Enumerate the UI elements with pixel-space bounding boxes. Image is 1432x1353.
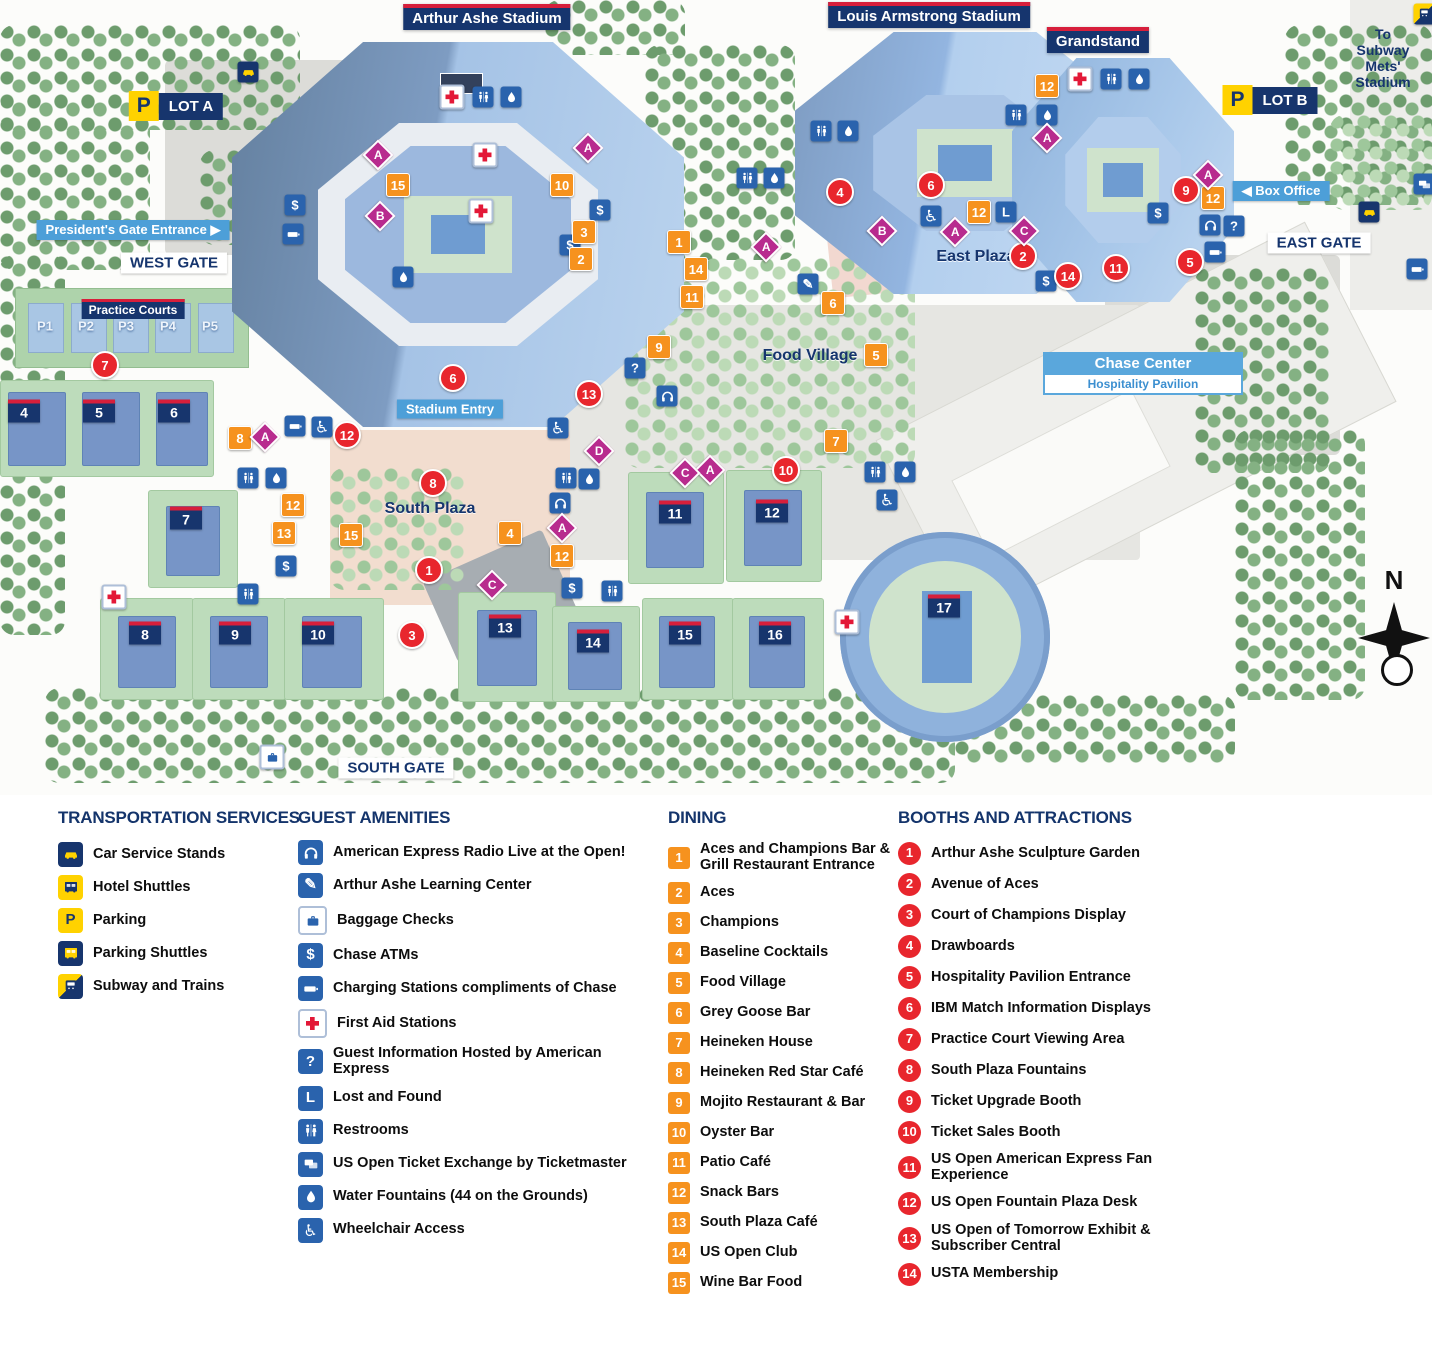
- booth-number-badge: 10: [898, 1121, 921, 1144]
- marker-firstaid-icon: [1068, 67, 1093, 92]
- legend-item: 1Arthur Ashe Sculpture Garden: [898, 842, 1228, 865]
- legend-item: 4Drawboards: [898, 935, 1228, 958]
- dining-number-badge: 2: [668, 882, 690, 904]
- marker-dining-11: 11: [680, 285, 704, 309]
- marker-dining-15: 15: [386, 173, 410, 197]
- legend-dining: DINING 1Aces and Champions Bar & Grill R…: [668, 808, 896, 1302]
- legend-item: 6IBM Match Information Displays: [898, 997, 1228, 1020]
- legend-item: Hotel Shuttles: [58, 875, 293, 900]
- dining-number-badge: 11: [668, 1152, 690, 1174]
- legend-item-label: US Open of Tomorrow Exhibit & Subscriber…: [931, 1223, 1228, 1255]
- legend-item-label: Court of Champions Display: [931, 908, 1126, 924]
- parking-icon: P: [58, 908, 83, 933]
- marker-water-icon: [895, 462, 916, 483]
- marker-booth-13: 13: [575, 380, 603, 408]
- legend-booths-attractions-title: BOOTHS AND ATTRACTIONS: [898, 808, 1228, 828]
- legend-item-label: First Aid Stations: [337, 1016, 457, 1032]
- marker-restroom-icon: [473, 87, 494, 108]
- legend-item: 7Practice Court Viewing Area: [898, 1028, 1228, 1051]
- marker-booth-14: 14: [1054, 262, 1082, 290]
- lot-b-label: PLOT B: [1223, 85, 1318, 115]
- legend-item: Baggage Checks: [298, 906, 666, 935]
- legend-item-label: Food Village: [700, 975, 786, 991]
- legend-item: 12US Open Fountain Plaza Desk: [898, 1192, 1228, 1215]
- legend-item: ♿Wheelchair Access: [298, 1218, 666, 1243]
- booth-number-badge: 12: [898, 1192, 921, 1215]
- legend-item: Restrooms: [298, 1119, 666, 1144]
- legend-item: 11Patio Café: [668, 1152, 896, 1174]
- legend-item-label: Restrooms: [333, 1123, 409, 1139]
- court-8-plate: 8: [129, 622, 161, 645]
- dining-number-badge: 5: [668, 972, 690, 994]
- marker-atm-icon: $: [562, 578, 583, 599]
- legend-item-label: US Open American Express Fan Experience: [931, 1152, 1228, 1184]
- marker-atm-icon: $: [276, 556, 297, 577]
- west-gate-label: WEST GATE: [121, 253, 227, 274]
- court-10-plate: 10: [302, 622, 334, 645]
- booth-number-badge: 2: [898, 873, 921, 896]
- dining-number-badge: 6: [668, 1002, 690, 1024]
- court-4-plate: 4: [8, 400, 40, 423]
- legend-item-label: Snack Bars: [700, 1185, 779, 1201]
- marker-wheelchair-icon: ♿: [312, 417, 333, 438]
- legend-dining-title: DINING: [668, 808, 896, 828]
- marker-guestinfo-icon: ?: [625, 358, 646, 379]
- legend-item: 1Aces and Champions Bar & Grill Restaura…: [668, 842, 896, 874]
- marker-restroom-icon: [238, 584, 259, 605]
- legend-item-label: USTA Membership: [931, 1266, 1058, 1282]
- marker-restroom-icon: [1101, 69, 1122, 90]
- legend-item-label: Aces and Champions Bar & Grill Restauran…: [700, 842, 896, 874]
- marker-radio-icon: [550, 493, 571, 514]
- court-16-plate: 16: [759, 622, 791, 645]
- legend-item: 8South Plaza Fountains: [898, 1059, 1228, 1082]
- parking-icon: P: [129, 91, 159, 121]
- legend-item-label: Practice Court Viewing Area: [931, 1032, 1124, 1048]
- marker-booth-5: 5: [1176, 248, 1204, 276]
- marker-restroom-icon: [556, 468, 577, 489]
- guestinfo-icon: ?: [298, 1049, 323, 1074]
- marker-dining-3: 3: [572, 220, 596, 244]
- compass-rose: N: [1358, 565, 1430, 740]
- food-village-label: Food Village: [763, 347, 858, 365]
- arthur-ashe-stadium-title: Arthur Ashe Stadium: [403, 4, 570, 30]
- court-13-plate: 13: [489, 615, 521, 638]
- chase-center-title: Chase Center: [1043, 352, 1243, 375]
- marker-atm-icon: $: [285, 195, 306, 216]
- hotel-shuttle-icon: [58, 875, 83, 900]
- marker-dining-8: 8: [228, 426, 252, 450]
- court-17-plate: 17: [928, 595, 960, 618]
- practice-court-label-P2: P2: [78, 319, 94, 334]
- marker-wheelchair-icon: ♿: [921, 206, 942, 227]
- marker-subway-icon: [1414, 4, 1432, 25]
- stadium-entry-label: Stadium Entry: [397, 400, 503, 419]
- marker-water-icon: [838, 121, 859, 142]
- parking-shuttle-icon: [58, 941, 83, 966]
- radio-icon: [298, 840, 323, 865]
- south-plaza-label: South Plaza: [385, 500, 476, 518]
- grandstand-court: [1103, 163, 1143, 197]
- legend-item: 9Ticket Upgrade Booth: [898, 1090, 1228, 1113]
- marker-dining-14: 14: [684, 257, 708, 281]
- court-5-plate: 5: [83, 400, 115, 423]
- dining-number-badge: 7: [668, 1032, 690, 1054]
- water-icon: [298, 1185, 323, 1210]
- legend-item-label: Parking: [93, 913, 146, 929]
- practice-courts-title: Practice Courts: [82, 299, 185, 319]
- legend-item: 11US Open American Express Fan Experienc…: [898, 1152, 1228, 1184]
- trees: [45, 688, 955, 783]
- legend-item: LLost and Found: [298, 1086, 666, 1111]
- legend-item: 10Ticket Sales Booth: [898, 1121, 1228, 1144]
- legend-item: 4Baseline Cocktails: [668, 942, 896, 964]
- legend-item-label: Champions: [700, 915, 779, 931]
- legend-item-label: US Open Ticket Exchange by Ticketmaster: [333, 1156, 627, 1172]
- marker-dining-6: 6: [821, 291, 845, 315]
- marker-water-icon: [764, 168, 785, 189]
- car-service-icon: [58, 842, 83, 867]
- booth-number-badge: 14: [898, 1263, 921, 1286]
- dining-number-badge: 4: [668, 942, 690, 964]
- practice-court-label-P4: P4: [160, 319, 176, 334]
- legend-item: 15Wine Bar Food: [668, 1272, 896, 1294]
- marker-booth-1: 1: [415, 556, 443, 584]
- marker-charging-icon: [285, 416, 306, 437]
- marker-restroom-icon: [811, 121, 832, 142]
- legend-item: PParking: [58, 908, 293, 933]
- legend-item-label: Hospitality Pavilion Entrance: [931, 970, 1131, 986]
- legend-item: 13South Plaza Café: [668, 1212, 896, 1234]
- marker-lost-icon: L: [996, 202, 1017, 223]
- legend-item-label: Mojito Restaurant & Bar: [700, 1095, 865, 1111]
- marker-charging-icon: [1205, 242, 1226, 263]
- legend-item: US Open Ticket Exchange by Ticketmaster: [298, 1152, 666, 1177]
- legend-item-label: Chase ATMs: [333, 948, 418, 964]
- marker-water-icon: [501, 87, 522, 108]
- legend-item-label: Drawboards: [931, 939, 1015, 955]
- marker-dining-12: 12: [1035, 74, 1059, 98]
- booth-number-badge: 6: [898, 997, 921, 1020]
- marker-charging-icon: [1407, 259, 1428, 280]
- wheelchair-icon: ♿: [298, 1218, 323, 1243]
- marker-restroom-icon: [737, 168, 758, 189]
- practice-court-label-P3: P3: [118, 319, 134, 334]
- legend-item-label: South Plaza Café: [700, 1215, 818, 1231]
- legend-item: 2Avenue of Aces: [898, 873, 1228, 896]
- marker-guestinfo-icon: ?: [1224, 216, 1245, 237]
- dining-number-badge: 15: [668, 1272, 690, 1294]
- legend-item: 3Court of Champions Display: [898, 904, 1228, 927]
- dining-number-badge: 13: [668, 1212, 690, 1234]
- court-9-plate: 9: [219, 622, 251, 645]
- legend-transportation-title: TRANSPORTATION SERVICES: [58, 808, 293, 828]
- marker-firstaid-icon: [835, 610, 860, 635]
- legend-guest-amenities: GUEST AMENITIES American Express Radio L…: [298, 808, 666, 1251]
- legend-item-label: Aces: [700, 885, 735, 901]
- marker-dining-10: 10: [550, 173, 574, 197]
- practice-court-label-P5: P5: [202, 319, 218, 334]
- legend-guest-amenities-title: GUEST AMENITIES: [298, 808, 666, 828]
- marker-restroom-icon: [1006, 105, 1027, 126]
- legend-item-label: Heineken Red Star Café: [700, 1065, 864, 1081]
- legend-item-label: Charging Stations compliments of Chase: [333, 981, 617, 997]
- legend-item-label: Guest Information Hosted by American Exp…: [333, 1046, 633, 1078]
- marker-taxi-icon: [1359, 202, 1380, 223]
- booth-number-badge: 8: [898, 1059, 921, 1082]
- marker-water-icon: [1129, 69, 1150, 90]
- marker-dining-2: 2: [569, 247, 593, 271]
- us-open-grounds-map-page: { "map": { "chase": {"line1": "Chase Cen…: [0, 0, 1432, 1353]
- grounds-map: Chase Center Hospitality Pavilion N Arth…: [0, 0, 1432, 795]
- legend-item: ?Guest Information Hosted by American Ex…: [298, 1046, 666, 1078]
- marker-booth-10: 10: [772, 456, 800, 484]
- marker-wheelchair-icon: ♿: [877, 490, 898, 511]
- east-plaza-label: East Plaza: [936, 248, 1015, 266]
- marker-wheelchair-icon: ♿: [548, 418, 569, 439]
- marker-booth-7: 7: [91, 351, 119, 379]
- court-15-plate: 15: [669, 622, 701, 645]
- legend-item: 13US Open of Tomorrow Exhibit & Subscrib…: [898, 1223, 1228, 1255]
- legend-item-label: Car Service Stands: [93, 847, 225, 863]
- legend-item: ✎Arthur Ashe Learning Center: [298, 873, 666, 898]
- map-legend: TRANSPORTATION SERVICES Car Service Stan…: [0, 795, 1432, 1353]
- court-14-plate: 14: [577, 630, 609, 653]
- marker-water-icon: [579, 469, 600, 490]
- chase-center-label: Chase Center Hospitality Pavilion: [1043, 352, 1243, 395]
- armstrong-court: [938, 145, 992, 182]
- legend-item-label: US Open Fountain Plaza Desk: [931, 1195, 1137, 1211]
- legend-item: 5Hospitality Pavilion Entrance: [898, 966, 1228, 989]
- legend-item-label: Wheelchair Access: [333, 1222, 465, 1238]
- legend-item-label: Ticket Upgrade Booth: [931, 1094, 1081, 1110]
- marker-dining-12: 12: [1201, 186, 1225, 210]
- legend-item-label: Avenue of Aces: [931, 877, 1039, 893]
- marker-dining-7: 7: [824, 429, 848, 453]
- booth-number-badge: 3: [898, 904, 921, 927]
- marker-booth-9: 9: [1172, 176, 1200, 204]
- restroom-icon: [298, 1119, 323, 1144]
- trees: [1330, 115, 1432, 210]
- marker-water-icon: [393, 267, 414, 288]
- booth-number-badge: 1: [898, 842, 921, 865]
- marker-baggage-icon: [260, 745, 285, 770]
- legend-booths-attractions: BOOTHS AND ATTRACTIONS 1Arthur Ashe Scul…: [898, 808, 1228, 1294]
- marker-atm-icon: $: [1148, 203, 1169, 224]
- legend-item-label: US Open Club: [700, 1245, 797, 1261]
- legend-item: 6Grey Goose Bar: [668, 1002, 896, 1024]
- court-12-plate: 12: [756, 500, 788, 523]
- dining-number-badge: 9: [668, 1092, 690, 1114]
- parking-icon: P: [1223, 85, 1253, 115]
- legend-item: 10Oyster Bar: [668, 1122, 896, 1144]
- marker-booth-3: 3: [398, 621, 426, 649]
- marker-firstaid-icon: [469, 199, 494, 224]
- atm-icon: $: [298, 943, 323, 968]
- legend-item-label: Heineken House: [700, 1035, 813, 1051]
- marker-restroom-icon: [602, 581, 623, 602]
- compass-hub: [1381, 654, 1413, 686]
- booth-number-badge: 11: [898, 1156, 921, 1179]
- legend-item: Car Service Stands: [58, 842, 293, 867]
- marker-dining-12: 12: [281, 493, 305, 517]
- ticketex-icon: [298, 1152, 323, 1177]
- legend-item-label: Patio Café: [700, 1155, 771, 1171]
- grandstand-title: Grandstand: [1047, 27, 1149, 53]
- marker-restroom-icon: [865, 462, 886, 483]
- marker-firstaid-icon: [440, 85, 465, 110]
- booth-number-badge: 5: [898, 966, 921, 989]
- legend-item-label: Hotel Shuttles: [93, 880, 190, 896]
- legend-item-label: Parking Shuttles: [93, 946, 207, 962]
- louis-armstrong-stadium-title: Louis Armstrong Stadium: [828, 2, 1030, 28]
- marker-firstaid-icon: [102, 585, 127, 610]
- marker-dining-15: 15: [339, 523, 363, 547]
- marker-ticketex-icon: [1414, 174, 1432, 195]
- marker-taxi-icon: [238, 62, 259, 83]
- marker-dining-12: 12: [550, 544, 574, 568]
- court-11-plate: 11: [659, 501, 691, 524]
- legend-item: Parking Shuttles: [58, 941, 293, 966]
- legend-item: 3Champions: [668, 912, 896, 934]
- practice-court-label-P1: P1: [37, 319, 53, 334]
- legend-item: Water Fountains (44 on the Grounds): [298, 1185, 666, 1210]
- marker-atm-icon: $: [590, 200, 611, 221]
- marker-booth-8: 8: [419, 469, 447, 497]
- trees: [1235, 430, 1365, 700]
- legend-item-label: Ticket Sales Booth: [931, 1125, 1060, 1141]
- lot-a-label: PLOT A: [129, 91, 223, 121]
- legend-item-label: Lost and Found: [333, 1090, 442, 1106]
- legend-item: First Aid Stations: [298, 1009, 666, 1038]
- trees: [0, 95, 150, 270]
- legend-item-label: American Express Radio Live at the Open!: [333, 845, 626, 861]
- booth-number-badge: 13: [898, 1227, 921, 1250]
- legend-item-label: Baseline Cocktails: [700, 945, 828, 961]
- legend-item: Charging Stations compliments of Chase: [298, 976, 666, 1001]
- booth-number-badge: 7: [898, 1028, 921, 1051]
- dining-number-badge: 12: [668, 1182, 690, 1204]
- court-6-plate: 6: [158, 400, 190, 423]
- dining-number-badge: 3: [668, 912, 690, 934]
- presidents-gate-entrance-label: President's Gate Entrance ▶: [37, 220, 230, 240]
- marker-water-icon: [266, 468, 287, 489]
- legend-item: 14US Open Club: [668, 1242, 896, 1264]
- marker-dining-5: 5: [864, 343, 888, 367]
- legend-item: 7Heineken House: [668, 1032, 896, 1054]
- legend-item: 12Snack Bars: [668, 1182, 896, 1204]
- court-17-stadium: [840, 532, 1050, 742]
- legend-item-label: Grey Goose Bar: [700, 1005, 810, 1021]
- legend-transportation: TRANSPORTATION SERVICES Car Service Stan…: [58, 808, 293, 1007]
- marker-booth-4: 4: [826, 178, 854, 206]
- marker-dining-9: 9: [647, 335, 671, 359]
- legend-item-label: Arthur Ashe Sculpture Garden: [931, 846, 1140, 862]
- booth-number-badge: 9: [898, 1090, 921, 1113]
- marker-dining-13: 13: [272, 521, 296, 545]
- marker-dining-1: 1: [667, 230, 691, 254]
- hospitality-pavilion-title: Hospitality Pavilion: [1043, 375, 1243, 395]
- marker-charging-icon: [283, 224, 304, 245]
- legend-item: 2Aces: [668, 882, 896, 904]
- marker-learning-icon: ✎: [798, 274, 819, 295]
- legend-item-label: Baggage Checks: [337, 913, 454, 929]
- legend-item: 5Food Village: [668, 972, 896, 994]
- box-office-label: ◀ Box Office: [1233, 181, 1330, 201]
- lost-icon: L: [298, 1086, 323, 1111]
- legend-item-label: Water Fountains (44 on the Grounds): [333, 1189, 588, 1205]
- marker-booth-12: 12: [333, 421, 361, 449]
- marker-booth-11: 11: [1102, 254, 1130, 282]
- firstaid-icon: [298, 1009, 327, 1038]
- legend-item: 14USTA Membership: [898, 1263, 1228, 1286]
- marker-dining-4: 4: [498, 521, 522, 545]
- legend-item: American Express Radio Live at the Open!: [298, 840, 666, 865]
- compass-north-label: N: [1358, 565, 1430, 596]
- legend-item: 8Heineken Red Star Café: [668, 1062, 896, 1084]
- legend-item-label: Arthur Ashe Learning Center: [333, 878, 531, 894]
- marker-booth-6: 6: [917, 171, 945, 199]
- legend-item-label: Subway and Trains: [93, 979, 224, 995]
- legend-item-label: IBM Match Information Displays: [931, 1001, 1151, 1017]
- dining-number-badge: 8: [668, 1062, 690, 1084]
- dining-number-badge: 14: [668, 1242, 690, 1264]
- dining-number-badge: 1: [668, 847, 690, 869]
- learning-icon: ✎: [298, 873, 323, 898]
- dining-number-badge: 10: [668, 1122, 690, 1144]
- marker-radio-icon: [657, 386, 678, 407]
- legend-item-label: Wine Bar Food: [700, 1275, 802, 1291]
- booth-number-badge: 4: [898, 935, 921, 958]
- legend-item-label: South Plaza Fountains: [931, 1063, 1086, 1079]
- charging-icon: [298, 976, 323, 1001]
- marker-restroom-icon: [238, 468, 259, 489]
- legend-item: Subway and Trains: [58, 974, 293, 999]
- marker-radio-icon: [1200, 215, 1221, 236]
- baggage-icon: [298, 906, 327, 935]
- east-gate-label: EAST GATE: [1268, 233, 1371, 254]
- south-gate-label: SOUTH GATE: [338, 758, 453, 779]
- marker-firstaid-icon: [473, 143, 498, 168]
- legend-item: $Chase ATMs: [298, 943, 666, 968]
- legend-item-label: Oyster Bar: [700, 1125, 774, 1141]
- court-7-plate: 7: [170, 507, 202, 530]
- marker-booth-6: 6: [439, 364, 467, 392]
- to-subway-label: To Subway Mets' Stadium: [1355, 26, 1410, 90]
- legend-item: 9Mojito Restaurant & Bar: [668, 1092, 896, 1114]
- marker-dining-12: 12: [967, 200, 991, 224]
- subway-icon: [58, 974, 83, 999]
